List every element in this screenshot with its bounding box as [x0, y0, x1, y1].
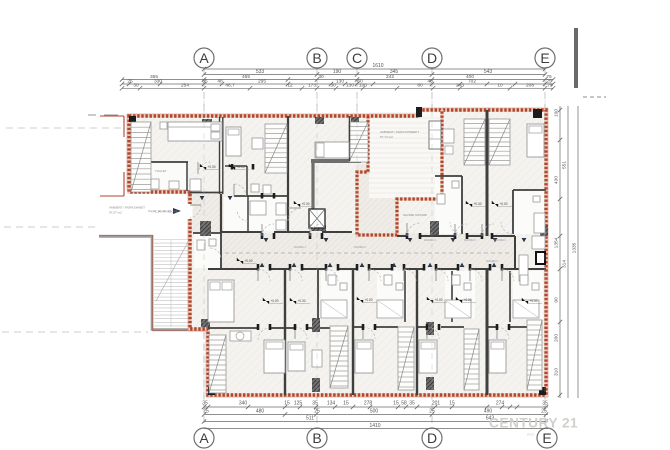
- svg-text:330: 330: [154, 78, 162, 84]
- svg-text:533: 533: [256, 69, 265, 75]
- svg-text:190: 190: [333, 69, 342, 75]
- svg-text:173: 173: [308, 83, 316, 89]
- svg-text:125: 125: [294, 401, 303, 407]
- svg-text:C: C: [352, 50, 362, 66]
- svg-text:+0.00: +0.00: [236, 165, 244, 169]
- svg-text:57.74 m2: 57.74 m2: [380, 135, 393, 139]
- svg-text:B: B: [312, 430, 321, 446]
- svg-text:1354: 1354: [554, 237, 560, 248]
- svg-text:201: 201: [432, 401, 441, 407]
- svg-text:D: D: [427, 430, 437, 446]
- svg-text:314: 314: [562, 260, 568, 268]
- svg-text:TOALET: TOALET: [155, 169, 167, 173]
- svg-text:35: 35: [312, 401, 318, 407]
- svg-text:E: E: [540, 50, 549, 66]
- svg-text:DHOMA 4: DHOMA 4: [464, 238, 476, 242]
- svg-text:+0.00: +0.00: [207, 165, 215, 169]
- svg-text:1335: 1335: [572, 242, 578, 253]
- svg-text:+0.00: +0.00: [364, 298, 372, 302]
- svg-text:254: 254: [181, 83, 189, 89]
- svg-text:274: 274: [496, 401, 505, 407]
- svg-text:465: 465: [242, 74, 250, 80]
- svg-text:490: 490: [484, 409, 493, 415]
- svg-text:AMBIENT I PERKSHINERIT: AMBIENT I PERKSHINERIT: [380, 130, 419, 134]
- svg-text:35: 35: [409, 401, 415, 407]
- svg-text:243: 243: [456, 83, 464, 89]
- svg-text:75: 75: [547, 83, 553, 89]
- svg-text:1610: 1610: [372, 63, 383, 69]
- svg-text:+0.00: +0.00: [297, 299, 305, 303]
- svg-text:295: 295: [258, 78, 266, 84]
- svg-text:340: 340: [239, 401, 248, 407]
- svg-text:40: 40: [427, 78, 433, 84]
- svg-text:543: 543: [484, 69, 493, 75]
- svg-text:+0.00: +0.00: [499, 202, 507, 206]
- svg-text:35: 35: [202, 401, 208, 407]
- svg-text:15: 15: [343, 401, 349, 407]
- svg-text:480: 480: [256, 409, 265, 415]
- svg-text:702: 702: [468, 78, 476, 84]
- svg-text:30: 30: [133, 83, 139, 89]
- svg-text:DHOMA 2: DHOMA 2: [354, 245, 366, 249]
- svg-text:DHOMA 5: DHOMA 5: [486, 259, 498, 263]
- svg-text:90: 90: [554, 297, 560, 303]
- svg-text:+0.00: +0.00: [463, 298, 471, 302]
- svg-text:25: 25: [314, 409, 320, 415]
- svg-text:100: 100: [554, 109, 560, 117]
- svg-text:100: 100: [359, 83, 367, 89]
- svg-text:D: D: [427, 50, 437, 66]
- svg-text:500: 500: [370, 409, 379, 415]
- svg-text:KYCJA KRYESORE: KYCJA KRYESORE: [151, 210, 178, 214]
- svg-text:80: 80: [417, 83, 423, 89]
- svg-text:511: 511: [306, 416, 314, 422]
- svg-text:15: 15: [393, 401, 399, 407]
- svg-text:15: 15: [449, 401, 455, 407]
- svg-text:+0.00: +0.00: [244, 259, 252, 263]
- svg-text:200: 200: [554, 334, 560, 342]
- svg-text:208: 208: [526, 83, 534, 89]
- svg-text:48: 48: [217, 78, 223, 84]
- svg-text:1410: 1410: [369, 423, 380, 429]
- svg-text:30: 30: [330, 83, 336, 89]
- svg-text:25: 25: [541, 409, 547, 415]
- svg-text:35: 35: [202, 78, 208, 84]
- svg-text:278: 278: [364, 401, 373, 407]
- svg-text:+0.00: +0.00: [434, 298, 442, 302]
- svg-text:242: 242: [386, 74, 394, 80]
- svg-text:IRO: IRO: [527, 432, 535, 437]
- svg-text:+0.00: +0.00: [270, 299, 278, 303]
- svg-text:35: 35: [542, 401, 548, 407]
- svg-text:DHOME SISTEMI: DHOME SISTEMI: [403, 213, 427, 217]
- svg-text:430: 430: [554, 176, 560, 184]
- svg-text:12: 12: [287, 83, 293, 89]
- svg-text:58: 58: [401, 401, 407, 407]
- svg-text:10: 10: [497, 83, 503, 89]
- svg-text:+0.00: +0.00: [301, 202, 309, 206]
- svg-text:15: 15: [284, 401, 290, 407]
- svg-text:DHOMA 1: DHOMA 1: [294, 245, 306, 249]
- svg-text:+0.00: +0.00: [473, 202, 481, 206]
- svg-text:134: 134: [327, 401, 336, 407]
- svg-text:97.07 m2: 97.07 m2: [109, 211, 122, 215]
- svg-text:B: B: [312, 50, 321, 66]
- svg-text:E: E: [542, 430, 551, 446]
- svg-text:DHOMA 2: DHOMA 2: [494, 238, 506, 242]
- svg-text:A: A: [199, 50, 209, 66]
- svg-text:310: 310: [554, 368, 560, 376]
- svg-text:A: A: [199, 430, 209, 446]
- svg-text:25: 25: [203, 409, 209, 415]
- svg-text:DHOMA 3: DHOMA 3: [424, 238, 436, 242]
- svg-text:30: 30: [318, 74, 324, 80]
- svg-text:25: 25: [127, 78, 133, 84]
- svg-text:CENTURY 21: CENTURY 21: [489, 416, 578, 431]
- svg-text:48,7: 48,7: [225, 83, 235, 89]
- svg-text:+0.00: +0.00: [529, 299, 537, 303]
- svg-text:25: 25: [429, 409, 435, 415]
- svg-text:AMBIENT I PERKSHINET: AMBIENT I PERKSHINET: [109, 206, 145, 210]
- svg-text:130: 130: [336, 78, 344, 84]
- svg-text:130: 130: [346, 83, 354, 89]
- svg-text:551: 551: [562, 161, 568, 169]
